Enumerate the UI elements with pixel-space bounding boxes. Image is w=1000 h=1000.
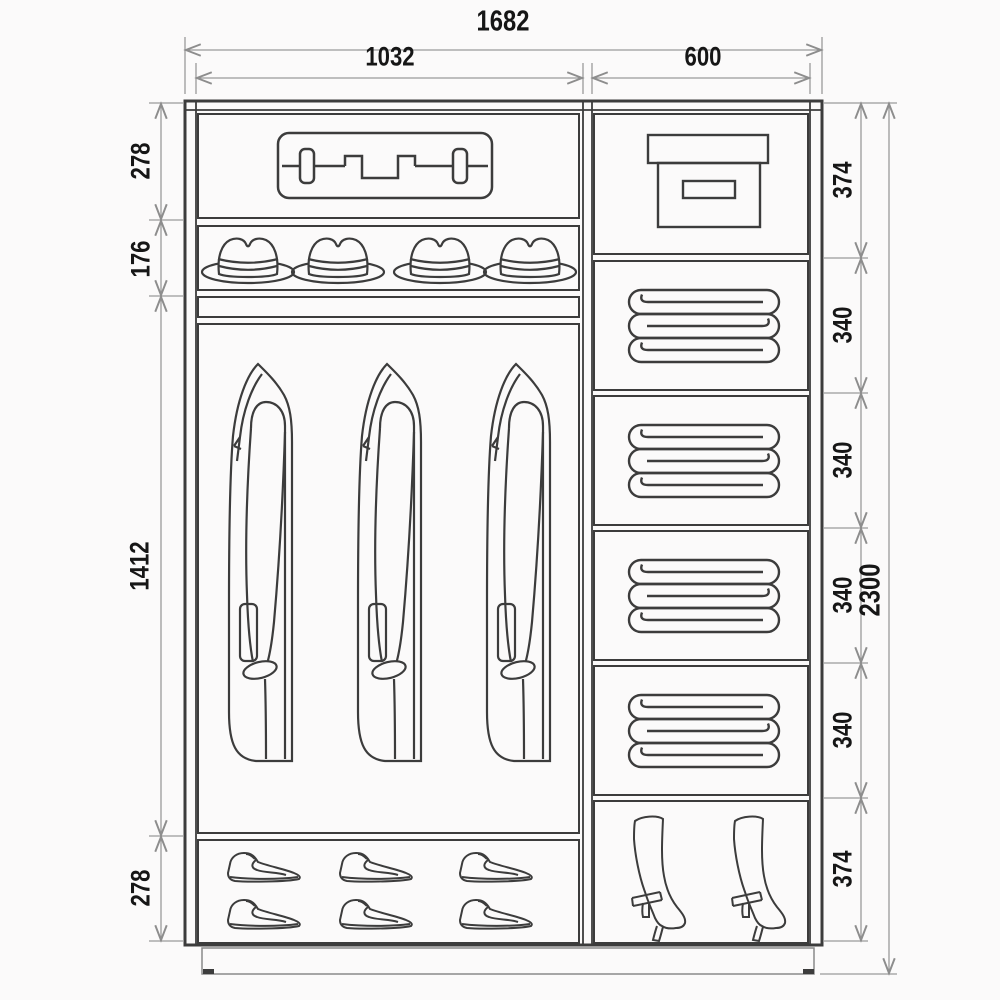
folded-blanket-icon [629, 560, 779, 632]
folded-blanket-icon [629, 695, 779, 767]
coat-icon [358, 364, 421, 761]
dim-total-height: 2300 [855, 564, 888, 617]
shoe-icon [460, 853, 532, 882]
hat-icon [484, 239, 576, 283]
dim-left-section-2: 176 [126, 241, 157, 278]
coat-icon [487, 364, 550, 761]
boots-pair [632, 817, 785, 941]
dim-left-section-1: 278 [126, 143, 157, 180]
shoe-icon [228, 853, 300, 882]
dim-total-width: 1682 [477, 6, 530, 39]
boot-icon [632, 817, 685, 941]
storage-box-icon [648, 135, 768, 227]
hats-row [202, 239, 576, 283]
suitcase-icon [278, 133, 492, 198]
dim-right-section-6: 374 [828, 851, 859, 888]
coat-icon [229, 364, 292, 761]
shoe-icon [340, 853, 412, 882]
dim-right-section-2: 340 [828, 307, 859, 344]
blankets [629, 290, 779, 767]
shoes-grid [228, 853, 532, 929]
dim-left-section-3: 1412 [125, 541, 156, 590]
hat-icon [202, 239, 294, 283]
shoe-icon [228, 900, 300, 929]
folded-blanket-icon [629, 425, 779, 497]
dim-left-section-4: 278 [126, 870, 157, 907]
wardrobe-dimension-diagram: 1682 1032 600 278 176 1412 278 374 340 3… [0, 0, 1000, 1000]
boot-icon [732, 817, 785, 941]
hat-icon [394, 239, 486, 283]
hat-icon [292, 239, 384, 283]
shelf-bar [198, 297, 579, 317]
wardrobe-base [202, 948, 814, 974]
dim-right-width: 600 [685, 42, 722, 73]
compartment-suitcase [198, 114, 579, 218]
dim-left-width: 1032 [365, 42, 414, 73]
shoe-icon [460, 900, 532, 929]
dim-right-section-5: 340 [828, 712, 859, 749]
coats-row [229, 364, 550, 761]
dim-right-section-3: 340 [828, 442, 859, 479]
folded-blanket-icon [629, 290, 779, 362]
shoe-icon [340, 900, 412, 929]
dim-right-section-1: 374 [828, 162, 859, 199]
